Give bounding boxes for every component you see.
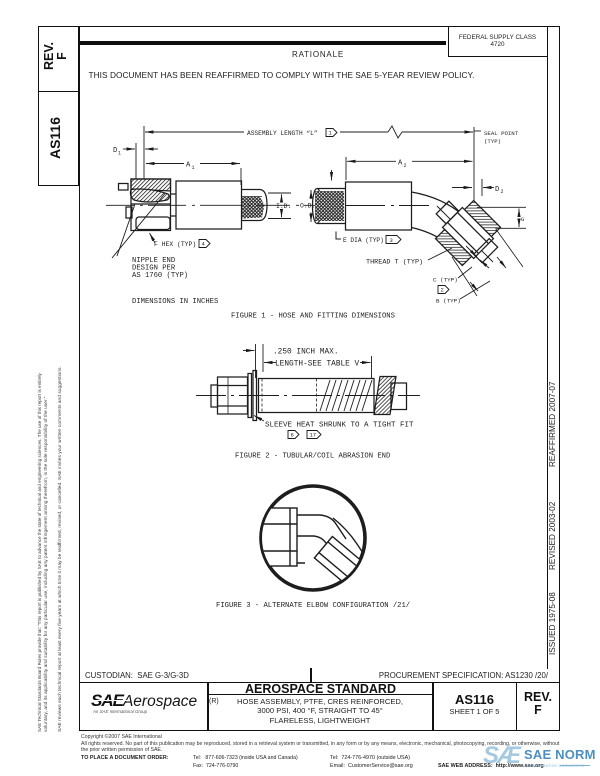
svg-text:.250 INCH MAX.: .250 INCH MAX. — [273, 349, 339, 357]
svg-text:2: 2 — [501, 189, 504, 195]
svg-text:1: 1 — [118, 151, 121, 157]
svg-text:17: 17 — [310, 432, 317, 439]
svg-text:THREAD T (TYP): THREAD T (TYP) — [366, 259, 423, 267]
svg-text:O.D.: O.D. — [300, 203, 315, 210]
svg-text:FIGURE 3 - ALTERNATE ELBOW CON: FIGURE 3 - ALTERNATE ELBOW CONFIGURATION… — [216, 602, 410, 610]
svg-text:D: D — [113, 147, 117, 155]
svg-text:A: A — [186, 162, 191, 170]
svg-text:F HEX (TYP): F HEX (TYP) — [154, 241, 196, 248]
svg-text:AS 1760 (TYP): AS 1760 (TYP) — [132, 272, 188, 280]
svg-text:ASSEMBLY LENGTH “L”: ASSEMBLY LENGTH “L” — [247, 130, 318, 137]
svg-text:3: 3 — [390, 237, 393, 244]
svg-text:FIGURE 1 - HOSE AND FITTING DI: FIGURE 1 - HOSE AND FITTING DIMENSIONS — [231, 313, 395, 321]
svg-text:(TYP): (TYP) — [484, 138, 501, 145]
svg-text:B (TYP): B (TYP) — [436, 298, 461, 305]
svg-text:2: 2 — [441, 287, 444, 294]
svg-text:LENGTH-SEE TABLE V: LENGTH-SEE TABLE V — [275, 361, 360, 369]
svg-text:A: A — [398, 160, 403, 168]
svg-text:1: 1 — [192, 165, 195, 171]
svg-text:SEAL POINT: SEAL POINT — [484, 130, 519, 137]
svg-text:FIGURE 2 - TUBULAR/COIL ABRASI: FIGURE 2 - TUBULAR/COIL ABRASION END — [235, 453, 390, 461]
svg-text:E DIA (TYP): E DIA (TYP) — [343, 237, 384, 244]
svg-text:C (TYP): C (TYP) — [433, 277, 458, 284]
svg-text:D: D — [495, 186, 499, 194]
svg-text:6: 6 — [291, 432, 294, 439]
svg-text:DIMENSIONS IN INCHES: DIMENSIONS IN INCHES — [132, 298, 218, 306]
svg-text:2: 2 — [404, 163, 407, 169]
svg-text:I.D.: I.D. — [276, 203, 291, 210]
svg-text:SLEEVE HEAT SHRUNK TO A TIGHT: SLEEVE HEAT SHRUNK TO A TIGHT FIT — [265, 422, 414, 430]
svg-text:G: G — [521, 216, 524, 223]
